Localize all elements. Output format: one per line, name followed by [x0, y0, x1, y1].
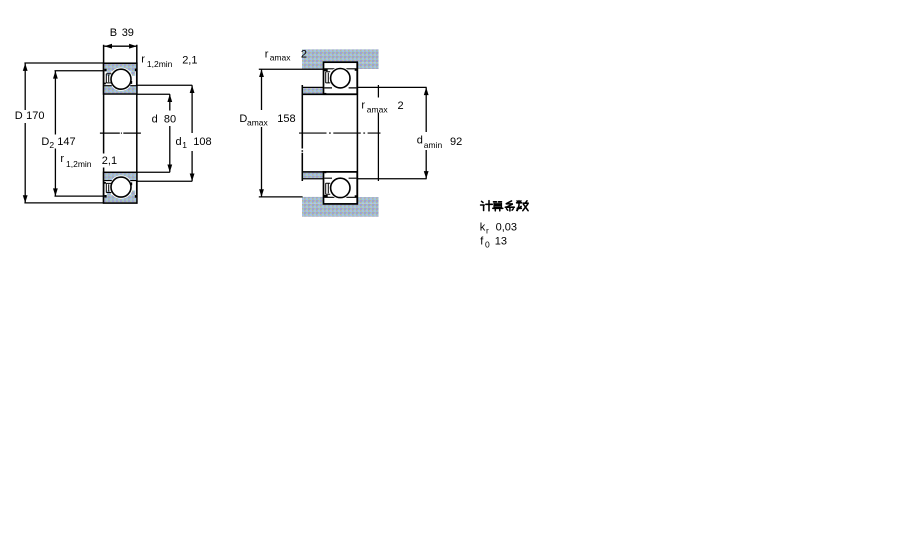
- svg-text:D: D: [15, 110, 23, 122]
- svg-text:amax: amax: [367, 105, 389, 115]
- svg-text:2: 2: [398, 100, 404, 112]
- svg-text:13: 13: [495, 236, 507, 248]
- svg-text:92: 92: [450, 136, 462, 148]
- svg-text:170: 170: [26, 110, 44, 122]
- svg-text:r: r: [60, 153, 64, 165]
- svg-text:1,2min: 1,2min: [147, 59, 173, 69]
- svg-text:k: k: [480, 222, 486, 234]
- svg-text:r: r: [265, 49, 269, 61]
- svg-text:2: 2: [301, 49, 307, 61]
- svg-text:D: D: [41, 136, 49, 148]
- svg-text:158: 158: [277, 113, 295, 125]
- svg-text:80: 80: [164, 113, 176, 125]
- svg-text:d: d: [176, 136, 182, 148]
- svg-text:r: r: [141, 54, 145, 66]
- svg-text:1: 1: [182, 140, 187, 150]
- svg-text:0: 0: [485, 239, 490, 249]
- svg-text:d: d: [417, 135, 423, 147]
- svg-text:108: 108: [193, 136, 211, 148]
- svg-text:2: 2: [49, 140, 54, 150]
- svg-text:r: r: [361, 100, 365, 112]
- svg-text:B: B: [110, 27, 117, 39]
- svg-text:0,03: 0,03: [496, 222, 517, 234]
- svg-text:d: d: [152, 113, 158, 125]
- svg-text:f: f: [480, 236, 484, 248]
- svg-text:1,2min: 1,2min: [66, 159, 92, 169]
- svg-text:amin: amin: [424, 140, 443, 150]
- svg-text:2,1: 2,1: [102, 155, 117, 167]
- svg-text:2,1: 2,1: [182, 54, 197, 66]
- svg-text:r: r: [486, 225, 489, 235]
- svg-text:147: 147: [57, 136, 75, 148]
- svg-text:39: 39: [122, 27, 134, 39]
- svg-text:amax: amax: [247, 118, 269, 128]
- svg-text:amax: amax: [270, 53, 292, 63]
